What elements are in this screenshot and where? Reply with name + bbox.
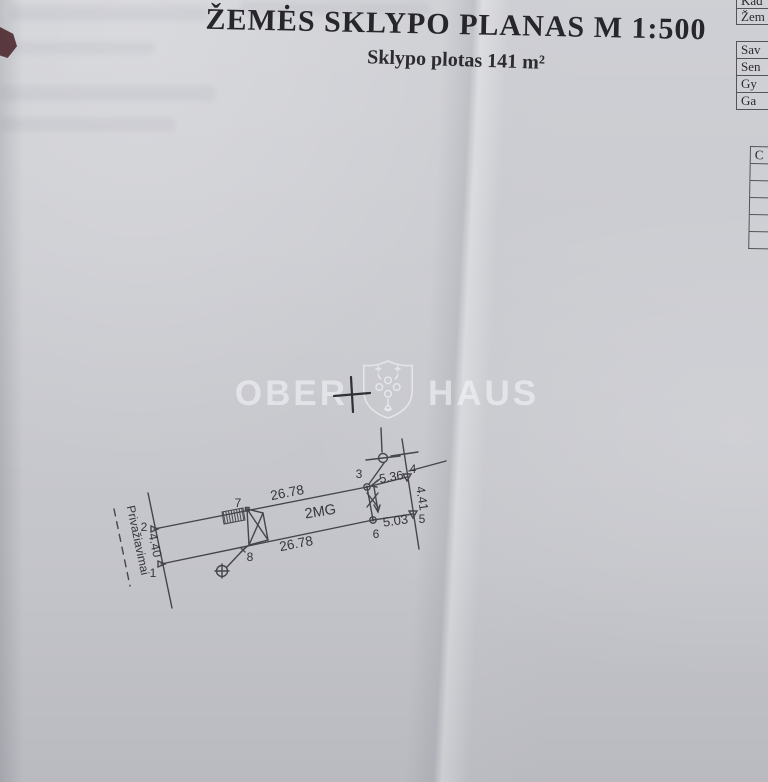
point-label-4: 4 <box>410 462 417 476</box>
dim-ext-right-label: 4.41 <box>413 485 431 511</box>
dim-ext-top-label: 5.36 <box>378 468 404 486</box>
dim-bottom-label: 26.78 <box>278 533 314 554</box>
plot-plan-drawing: 26.78 26.78 2MG 5.36 5.03 4.41 4.40 Priv… <box>0 0 768 782</box>
point-label-5: 5 <box>419 512 426 526</box>
point-label-2: 2 <box>141 520 148 534</box>
registration-cross-icon <box>334 377 370 412</box>
point-label-7: 7 <box>235 496 242 510</box>
point-label-3: 3 <box>356 467 363 481</box>
area-label: 2MG <box>304 502 338 523</box>
dim-ext-bottom-label: 5.03 <box>382 511 409 529</box>
pole-line-horizontal <box>366 456 400 460</box>
pole-line-vertical <box>381 428 382 452</box>
plot-edge-bottom <box>161 520 373 564</box>
well-leader-line <box>227 551 242 567</box>
point-label-1: 1 <box>150 566 157 580</box>
point-label-8: 8 <box>247 550 254 564</box>
hatched-structure <box>222 508 245 524</box>
dim-leader-arrowhead <box>371 480 378 487</box>
point-label-6: 6 <box>373 527 380 541</box>
